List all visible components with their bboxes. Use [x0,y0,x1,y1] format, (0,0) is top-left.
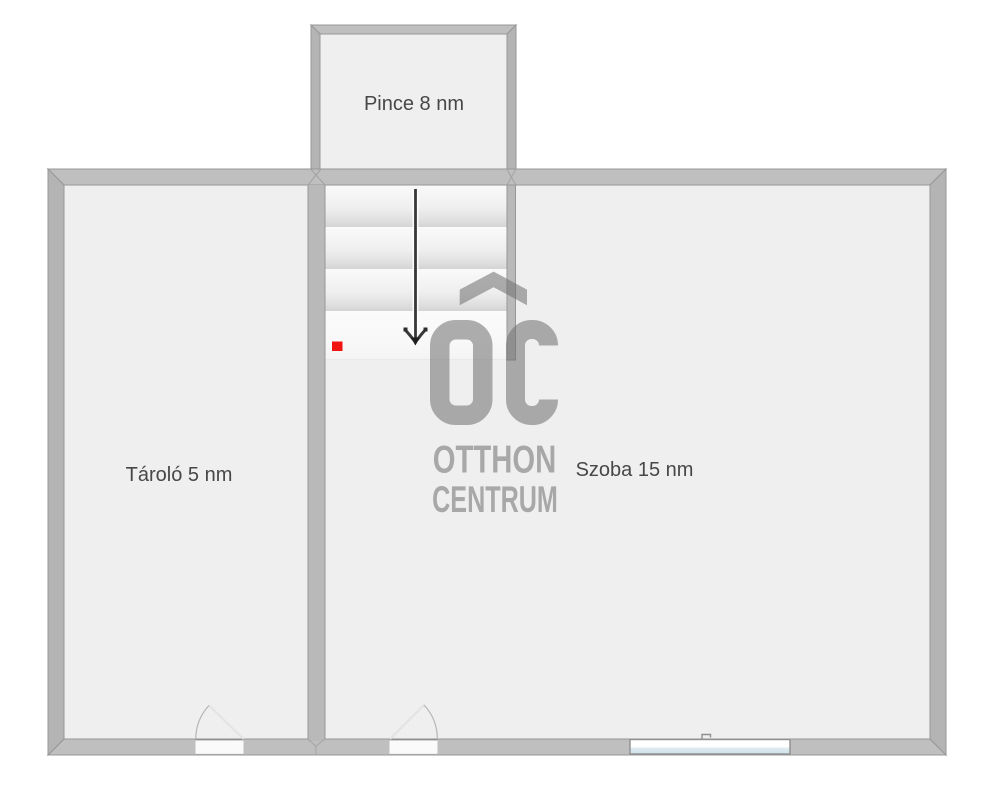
svg-text:Pince 8 nm: Pince 8 nm [364,93,464,115]
svg-text:Szoba 15 nm: Szoba 15 nm [576,459,694,481]
svg-text:OTTHON: OTTHON [433,439,556,482]
svg-text:Tároló 5 nm: Tároló 5 nm [126,464,233,486]
svg-text:CENTRUM: CENTRUM [432,478,558,520]
